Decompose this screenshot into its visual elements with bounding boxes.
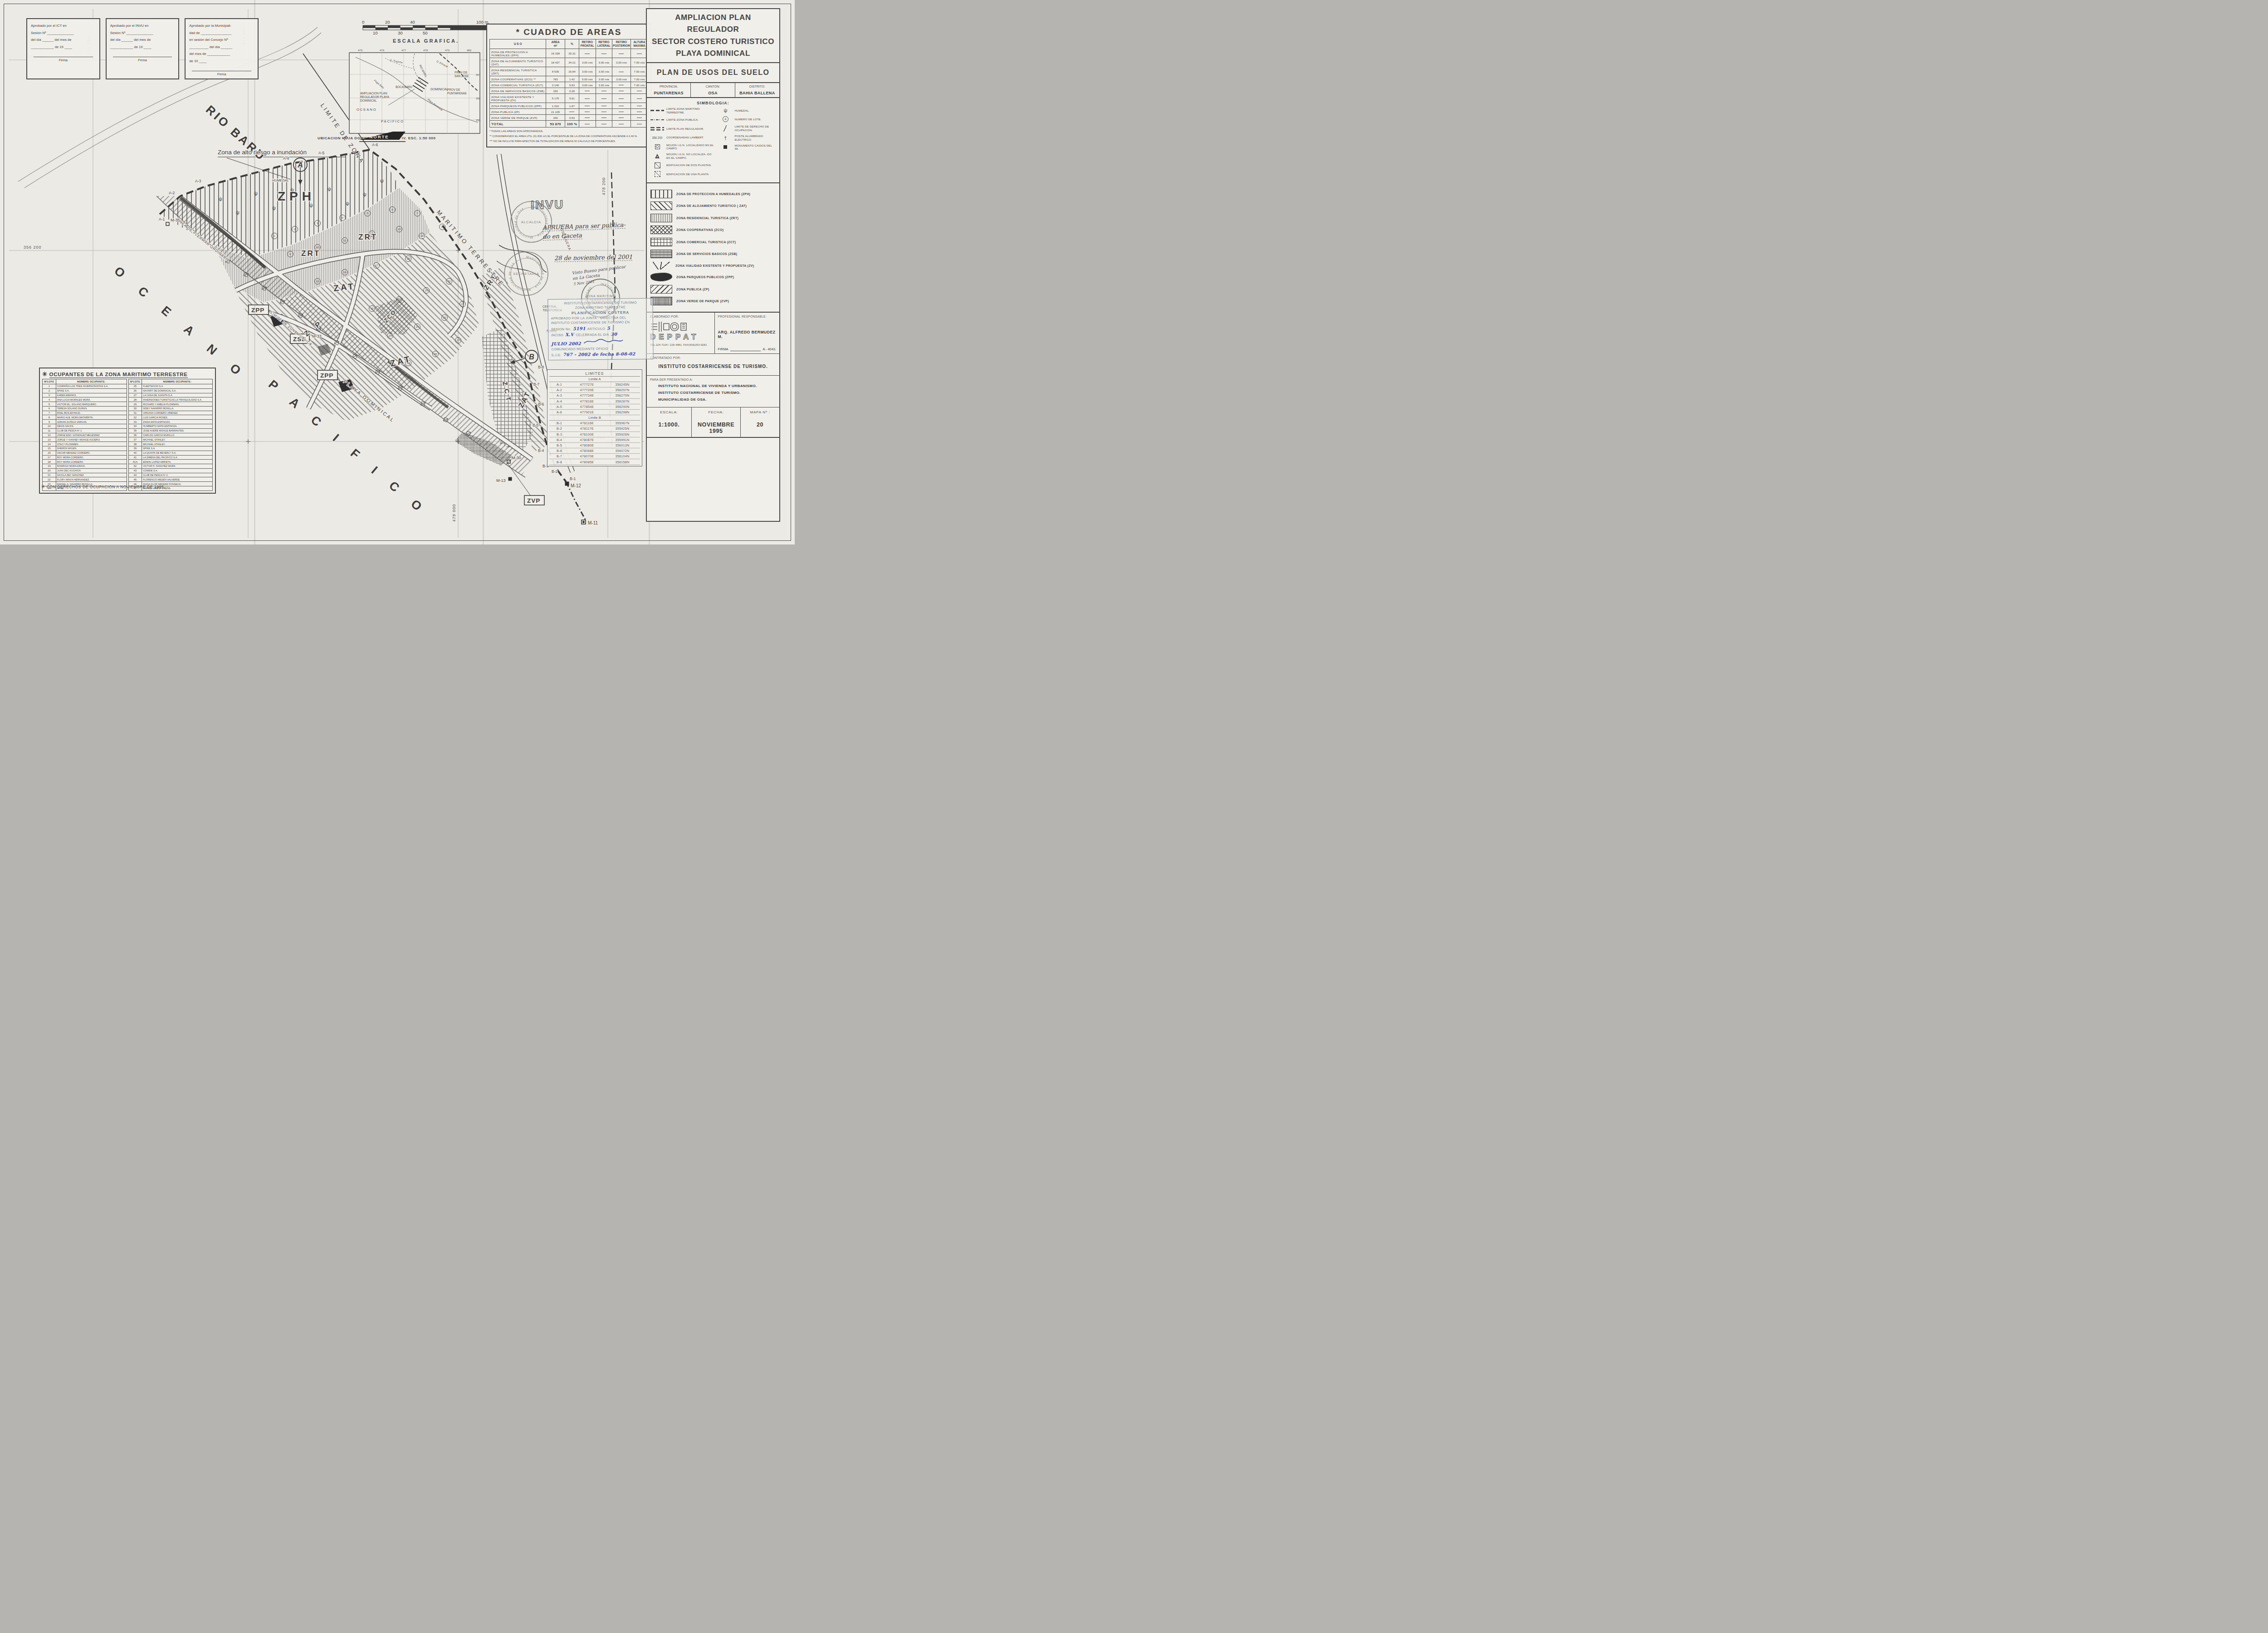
occupant-name-cell: NICOLA ZEC SANCHEZ. bbox=[56, 473, 127, 477]
lot-number-cell: 45 bbox=[128, 477, 142, 482]
simbologia-label: MONUMENTO CAIDOS DEL 48. bbox=[734, 144, 776, 151]
occupant-name-cell: LUIS GARCIA ROSES. bbox=[142, 415, 213, 420]
north-arrow: NORTE bbox=[357, 129, 407, 144]
limit-cell: B-5 bbox=[549, 443, 569, 448]
scale-tick: 40 bbox=[410, 20, 415, 25]
label-oceano: O C E A N O bbox=[112, 264, 250, 383]
legend-label: ZONA DE PROTECCION A HUMEDALES (ZPH) bbox=[676, 192, 750, 196]
lot-number-cell: 36 bbox=[128, 433, 142, 437]
zmt-icon bbox=[650, 108, 664, 114]
cell: 3 140 bbox=[546, 82, 565, 88]
dash-mark bbox=[585, 118, 590, 118]
inset-grid-label: 477 bbox=[401, 49, 406, 52]
cell: 53 870 bbox=[546, 121, 565, 128]
zco-swatch bbox=[650, 226, 672, 234]
table-row: 41LA SIRENA DEL PACIFICO S.A. bbox=[128, 455, 213, 460]
table-row: 31VIRGINIA CORDERO JIMENEZ. bbox=[128, 411, 213, 415]
label-marker-b: B bbox=[529, 353, 534, 361]
canton-label: CANTON: bbox=[693, 85, 733, 88]
approval-line: __________ del día ______ bbox=[189, 44, 254, 51]
legend-label: ZONA RESIDENCIAL TURISTICA (ZRT) bbox=[676, 216, 738, 220]
mojon-noloc-icon bbox=[650, 153, 664, 159]
label-m11: M-11 bbox=[588, 520, 598, 525]
dash-mark bbox=[585, 106, 590, 106]
cell: ZONA RESIDENCIAL TURISTICA (ZRT) bbox=[490, 67, 546, 76]
limit-cell: 356298N bbox=[605, 410, 640, 415]
legend-label: ZONA DE SERVICIOS BASICOS (ZSB) bbox=[676, 252, 737, 255]
table-row: ZONA PARQUEOS PUBLICOS (ZPP)1 0101.87 bbox=[490, 103, 648, 109]
lot-number-cell: 38 bbox=[128, 442, 142, 446]
occupant-name-cell: EDWIN LOPEZ ARRIETA. bbox=[142, 460, 213, 464]
zsb-swatch bbox=[650, 250, 672, 258]
inset-label: BOCA BARU bbox=[396, 85, 412, 88]
simbologia-label: MOJON I.G.N. NO LOCALIZA- DO EN EL CAMPO… bbox=[666, 152, 716, 159]
cell bbox=[596, 109, 612, 115]
legend-label: ZONA DE ALOJAMIENTO TURISTICO ( ZAT) bbox=[676, 204, 747, 207]
inset-grid-label: 476 bbox=[380, 49, 385, 52]
table-row: 25FLEETWOOD S.A. bbox=[128, 384, 213, 389]
limit-cell: 478116E bbox=[569, 421, 605, 426]
inset-grid-label: 475 bbox=[358, 49, 363, 52]
dash-mark bbox=[637, 98, 642, 99]
sheet-subtitle: PLAN DE USOS DEL SUELO bbox=[647, 63, 779, 83]
svg-text:11: 11 bbox=[343, 239, 347, 242]
inset-grid-label: 357 bbox=[476, 74, 481, 76]
label-m13: M-13 bbox=[496, 478, 506, 483]
table-row: 6TERESA SOLANO DURAN. bbox=[43, 406, 127, 411]
approval-line: dad de ________________ bbox=[189, 29, 254, 37]
approval-line: en sesión del Concejo Nº bbox=[189, 36, 254, 44]
label-m35: M-35 bbox=[171, 218, 180, 222]
svg-text:20: 20 bbox=[398, 298, 401, 301]
table-row: 35JOSE ANDRE MONGE BARRANTES. bbox=[128, 428, 213, 433]
table-row: 39SPIKE S.A. bbox=[128, 446, 213, 451]
simbologia-label: LIMITE PLAN REGULADOR. bbox=[666, 127, 704, 131]
label-m30: M-30 bbox=[512, 456, 521, 460]
dash-mark bbox=[585, 98, 590, 99]
approval-line: Sesión Nº ______________ bbox=[110, 29, 175, 37]
simbologia-item: MOJON I.G.N. LOCALIZADO EN EL CAMPO. bbox=[650, 143, 716, 150]
limit-cell: 356158N bbox=[605, 459, 640, 464]
zat-swatch bbox=[650, 201, 672, 210]
firma-line bbox=[113, 57, 172, 57]
limit-cell: B-7 bbox=[549, 454, 569, 459]
firma-label: Firma bbox=[217, 72, 226, 76]
dash-mark bbox=[619, 118, 624, 118]
cell bbox=[631, 109, 648, 115]
lot-number-cell: 42 bbox=[128, 464, 142, 469]
cell bbox=[612, 115, 631, 121]
deppat-wordmark: DEPPAT bbox=[650, 333, 699, 342]
table-row: 10DENIS SACKS. bbox=[43, 424, 127, 429]
fold-line bbox=[483, 0, 484, 544]
occupant-name-cell: ADRIAN ZUÑIGA VARGAS. bbox=[56, 420, 127, 424]
cell: 765 bbox=[546, 76, 565, 82]
zph-swatch bbox=[650, 190, 672, 198]
limit-row: B-1478116E355967N bbox=[549, 421, 640, 426]
svg-text:21: 21 bbox=[425, 289, 428, 292]
legend-row-zpp: ZONA PARQUEOS PUBLICOS (ZPP) bbox=[650, 273, 776, 281]
inset-label: OCEANO bbox=[357, 108, 377, 112]
table-row: 30SIDEY NAVARRO BONILLA. bbox=[128, 406, 213, 411]
inset-grid-label: 478 bbox=[423, 49, 428, 52]
table-row: 28INVERSIONES TURISTICAS LA TRANQUILIDAD… bbox=[128, 397, 213, 402]
limit-cell: 355967N bbox=[605, 421, 640, 426]
table-row: 15SHERON WIGEN. bbox=[43, 446, 127, 451]
cell: 3.00 mts bbox=[579, 82, 596, 88]
svg-text:31: 31 bbox=[457, 339, 460, 342]
derecho-icon bbox=[719, 125, 732, 132]
occupant-name-cell: MARIO ALB. MORA MATARRITA. bbox=[56, 415, 127, 420]
inset-grid-label: 356 bbox=[476, 97, 481, 100]
escala-label: ESCALA: bbox=[648, 410, 690, 414]
cell: ZONA COOPERATIVAS (ZCO) ** bbox=[490, 76, 546, 82]
cell: 3.00 mts bbox=[596, 67, 612, 76]
cell: 3.00 mts bbox=[596, 58, 612, 67]
escala-value: 1:1000. bbox=[648, 422, 690, 428]
handwritten-approval: APRUEBA para ser publica- do en Gaceta bbox=[542, 220, 649, 241]
humedal-icon: ψ bbox=[719, 107, 732, 113]
handwritten-date: 28 de noviembre del 2001 bbox=[554, 253, 633, 261]
limit-row: B-5478080E356013N bbox=[549, 443, 640, 448]
cell bbox=[631, 49, 648, 58]
cell: 0.28 bbox=[565, 88, 579, 94]
lote-header: NºLOTE bbox=[128, 379, 142, 384]
lote-header: NºLOTE bbox=[43, 379, 56, 384]
table-row: 27LA CASA DE JUANITA S.A. bbox=[128, 393, 213, 397]
col-area: AREAm² bbox=[546, 39, 565, 49]
occupant-name-cell: VICTOR H. SANCHEZ MORA bbox=[142, 464, 213, 469]
cell: 0.63 bbox=[565, 115, 579, 121]
table-row: 34HUMBERTO MATA ESPINOZA. bbox=[128, 424, 213, 429]
svg-text:ψ: ψ bbox=[346, 201, 349, 206]
approval-box-1: Aprobado por el ICT enSesión Nº ________… bbox=[26, 18, 100, 79]
cell: 3.00 mts bbox=[596, 82, 612, 88]
cell bbox=[612, 82, 631, 88]
scale-tick: 50 bbox=[423, 30, 428, 35]
legend-label: ZONA VERDE DE PARQUE (ZVP) bbox=[676, 299, 729, 303]
areas-header-row: U S O AREAm² % RETIROFRONTAL RETIROLATER… bbox=[490, 39, 648, 49]
cell bbox=[579, 109, 596, 115]
limit-cell: B-6 bbox=[549, 448, 569, 453]
cell bbox=[596, 49, 612, 58]
zvp-swatch bbox=[650, 297, 672, 305]
cell bbox=[612, 109, 631, 115]
fecha-label: FECHA: bbox=[693, 410, 739, 414]
signature-squiggle bbox=[583, 338, 624, 345]
lot-number-cell: 40 bbox=[128, 451, 142, 455]
deppat-contact: TEL.224-7104 / 225-4881. FAX(506)253-928… bbox=[650, 343, 711, 346]
table-row: 33ZAIDA MATA ESPINOZA. bbox=[128, 420, 213, 424]
fecha-value: NOVIEMBRE 1995 bbox=[693, 422, 739, 434]
lot-number-cell: 20 bbox=[43, 468, 56, 473]
occupant-name-cell: FLEETWOOD S.A. bbox=[142, 384, 213, 389]
cell bbox=[612, 103, 631, 109]
occupants-footnote: ✳ CON DERECHOS DE OCUPACION A NOVIEMBRE … bbox=[41, 484, 165, 490]
table-row: 16OSCAR MENDEZ CORDERO. bbox=[43, 451, 127, 455]
label-zpp-box-2: ZPP bbox=[320, 372, 333, 379]
areas-note: ** CONSIDERANDO EL AREA UTIL (31 830 m²)… bbox=[489, 134, 648, 138]
limit-cell: A-1 bbox=[549, 382, 569, 387]
approval-line: del día ______ del mes de bbox=[110, 36, 175, 44]
invu-stamp: INVU bbox=[531, 197, 565, 212]
occupants-left: NºLOTE NOMBRE OCUPANTE: 1COMPAÑIA LOS TR… bbox=[42, 379, 127, 491]
occupant-name-cell: DENIS SACKS. bbox=[56, 424, 127, 429]
table-row: 11CLUB DE PESCA Nº 1. bbox=[43, 428, 127, 433]
credits: ELABORADO POR: DEPPAT TEL.224-71 bbox=[647, 313, 779, 438]
table-row: 12JORGE EDO. GONZALEZ MELENDEZ bbox=[43, 433, 127, 437]
responsable-label: PROFESIONAL RESPONSABLE: bbox=[718, 315, 776, 318]
cell: 5 175 bbox=[546, 94, 565, 103]
svg-text:10: 10 bbox=[316, 246, 319, 249]
cell bbox=[631, 121, 648, 128]
simbologia-label: COORDENADAS LAMBERT. bbox=[666, 136, 704, 139]
simbologia-item: EDIFICACION DE UNA PLANTA bbox=[650, 171, 716, 177]
table-row: 19RODRIGO MORA ARAYA. bbox=[43, 464, 127, 469]
cell bbox=[596, 115, 612, 121]
dash-mark bbox=[601, 118, 606, 118]
occupant-name-cell: JORGE EDO. GONZALEZ MELENDEZ bbox=[56, 433, 127, 437]
lot-number-cell: 33 bbox=[128, 420, 142, 424]
cell bbox=[579, 94, 596, 103]
limit-row: B-3478100E355926N bbox=[549, 432, 640, 437]
nombre-header: NOMBRE OCUPANTE: bbox=[142, 379, 213, 384]
limit-cell: B-1 bbox=[549, 421, 569, 426]
lot-number-cell: 44 bbox=[128, 473, 142, 477]
dash-mark bbox=[619, 98, 624, 99]
legend-row-zat: ZONA DE ALOJAMIENTO TURISTICO ( ZAT) bbox=[650, 201, 776, 210]
limit-cell: A-3 bbox=[549, 393, 569, 398]
label-b5: B-5 bbox=[533, 423, 539, 427]
poste-icon: † bbox=[719, 135, 732, 141]
table-row: 5VICTOR ML. SOLANO BARQUERO. bbox=[43, 402, 127, 407]
svg-text:27: 27 bbox=[461, 303, 464, 305]
dash-mark bbox=[601, 112, 606, 112]
table-row: 1COMPAÑIA LOS TRES INVERSIONISTAS S.A. bbox=[43, 384, 127, 389]
limit-cell: 478117E bbox=[569, 426, 605, 431]
limit-row: A-2477720E356257N bbox=[549, 387, 640, 393]
dash-mark bbox=[601, 91, 606, 91]
approval-box-2: Aprobado por el INVU enSesión Nº _______… bbox=[106, 18, 180, 79]
simbologia-item: LIMITE PLAN REGULADOR. bbox=[650, 126, 716, 132]
cell bbox=[612, 94, 631, 103]
occupant-name-cell: NAYARIT DE DOMINICAL S.A. bbox=[142, 388, 213, 393]
areas-note: *** NO SE INCLUYE PARA EFECTOS DE TOTALI… bbox=[489, 139, 648, 143]
cell: 3.00 mts bbox=[612, 58, 631, 67]
label-flood-note: Zona de alto riesgo a inundación bbox=[218, 149, 307, 156]
legend-row-zsb: ZONA DE SERVICIOS BASICOS (ZSB) bbox=[650, 250, 776, 258]
occupant-name-cell: LA QUINTA DE BEVERLY S.A. bbox=[142, 451, 213, 455]
dash-mark bbox=[637, 118, 642, 118]
lot-number-cell: 8 bbox=[43, 415, 56, 420]
zv-swatch bbox=[650, 262, 671, 270]
presentado-label: PARA SER PRESENTADO A: bbox=[650, 378, 776, 381]
coord-icon: 356 200 bbox=[650, 134, 664, 141]
cell bbox=[579, 115, 596, 121]
table-row: ZONA DE ALOJAMIENTO TURISTICO (ZAT)18 42… bbox=[490, 58, 648, 67]
svg-text:13: 13 bbox=[398, 228, 401, 230]
dash-mark bbox=[585, 54, 590, 54]
occupants-right: NºLOTE NOMBRE OCUPANTE: 25FLEETWOOD S.A.… bbox=[128, 379, 213, 491]
cell bbox=[579, 49, 596, 58]
label-humedal: HUMEDAL bbox=[272, 178, 289, 182]
occupant-name-cell: SPIKE S.A. bbox=[56, 388, 127, 393]
label-a2: A-2 bbox=[169, 191, 175, 195]
title-block: AMPLIACION PLAN REGULADORSECTOR COSTERO … bbox=[646, 8, 780, 522]
occupant-name-cell: ROY MORA CORDERO. bbox=[56, 460, 127, 464]
limit-cell: 478068E bbox=[569, 448, 605, 453]
contratado-label: CONTRATADO POR: bbox=[650, 356, 776, 359]
label-m12: M-12 bbox=[571, 483, 581, 488]
table-row: ZONA DE PROTECCION A HUMEDALES (ZPH)16 3… bbox=[490, 49, 648, 58]
simbologia: SIMBOLOGIA: LIMITE ZONA MARITIMO TERREST… bbox=[647, 98, 779, 183]
col-altura: ALTURAMAXIMA bbox=[631, 39, 648, 49]
provincia-label: PROVINCIA: bbox=[649, 85, 689, 88]
legend-row-zv: ZONA VIALIDAD EXISTENTE Y PROPUESTA (ZV) bbox=[650, 262, 776, 270]
cell bbox=[612, 88, 631, 94]
inset-callout: AMPLIACION PLAN bbox=[360, 92, 387, 95]
inset-label: PACIFICO bbox=[381, 119, 404, 123]
presentado-line: MUNICIPALIDAD DE OSA. bbox=[658, 397, 776, 402]
table-row: 32LUIS GARCIA ROSES. bbox=[128, 415, 213, 420]
mapa-value: 20 bbox=[742, 422, 778, 428]
zp-swatch bbox=[650, 285, 672, 294]
occupant-name-cell: VIRGINIA CORDERO JIMENEZ. bbox=[142, 411, 213, 415]
cell bbox=[579, 121, 596, 128]
label-zrt-1: ZRT bbox=[301, 249, 320, 258]
lot-number-cell: 10 bbox=[43, 424, 56, 429]
table-row: 36CARLOS GARCIA MURILLO. bbox=[128, 433, 213, 437]
cell: 100 % bbox=[565, 121, 579, 128]
label-b1: B-1 bbox=[570, 476, 576, 481]
table-row: 13JORGE Y VIANNEY MONGE AGÜERO. bbox=[43, 437, 127, 442]
col-pct: % bbox=[565, 39, 579, 49]
svg-text:24: 24 bbox=[389, 334, 392, 337]
cell: 1.87 bbox=[565, 103, 579, 109]
limit-cell: B-2 bbox=[549, 426, 569, 431]
simbologia-label: EDIFICACION DE DOS PLANTAS. bbox=[666, 163, 712, 167]
label-b8: B-8 bbox=[538, 365, 544, 369]
lot-number-cell: 1 bbox=[43, 384, 56, 389]
table-row: ZONA VERDE DE PARQUE (ZVP)3400.63 bbox=[490, 115, 648, 121]
dash-mark bbox=[619, 124, 624, 124]
cell bbox=[596, 88, 612, 94]
cell: 3.00 mts bbox=[579, 58, 596, 67]
firma-code: A - 4043. bbox=[763, 347, 776, 351]
cell: 7.00 mts bbox=[631, 58, 648, 67]
lot-number-cell: 7 bbox=[43, 411, 56, 415]
lot-number-cell: 29 bbox=[128, 402, 142, 407]
cell: ZONA DE ALOJAMIENTO TURISTICO (ZAT) bbox=[490, 58, 546, 67]
firma-line bbox=[34, 57, 93, 57]
label-zpp-box-1: ZPP bbox=[251, 307, 264, 314]
occupant-name-cell: SIDEY NAVARRO BONILLA. bbox=[142, 406, 213, 411]
simbologia-item: EDIFICACION DE DOS PLANTAS. bbox=[650, 162, 716, 168]
cell: ZONA PARQUEOS PUBLICOS (ZPP) bbox=[490, 103, 546, 109]
limit-row: B-7478070E356104N bbox=[549, 454, 640, 459]
cell bbox=[631, 103, 648, 109]
legend-row-zph: ZONA DE PROTECCION A HUMEDALES (ZPH) bbox=[650, 190, 776, 198]
svg-text:ψ: ψ bbox=[380, 178, 384, 183]
lot-number-cell: 25 bbox=[128, 384, 142, 389]
table-row: 43COMIDE S.A. bbox=[128, 468, 213, 473]
limit-cell: 477720E bbox=[569, 387, 605, 392]
occupant-name-cell: STACY PLOWMEN. bbox=[56, 442, 127, 446]
occupant-name-cell: FLORENCIO MESEN VALVERDE. bbox=[142, 477, 213, 482]
table-row: 37MICHAEL STANLEY. bbox=[128, 437, 213, 442]
svg-text:17: 17 bbox=[375, 264, 378, 267]
table-row: 42VICTOR H. SANCHEZ MORA bbox=[128, 464, 213, 469]
dash-mark bbox=[619, 85, 624, 85]
mapa-label: MAPA Nº : bbox=[742, 410, 778, 414]
zrt-swatch bbox=[650, 214, 672, 222]
dash-mark bbox=[619, 72, 624, 72]
lot-number-cell: 18 bbox=[43, 460, 56, 464]
occupant-name-cell: LA SIRENA DEL PACIFICO S.A. bbox=[142, 455, 213, 460]
lote-icon: 4 bbox=[719, 116, 732, 123]
occupant-name-cell: FLORY ARAYA HERNANDEZ. bbox=[56, 477, 127, 482]
lot-number-cell: 11 bbox=[43, 428, 56, 433]
limit-row: B-2478117E355925N bbox=[549, 426, 640, 432]
cell bbox=[612, 121, 631, 128]
lot-number-cell: 30 bbox=[128, 406, 142, 411]
occupant-name-cell: MICHAEL STANLEY. bbox=[142, 437, 213, 442]
table-row: TOTAL53 870100 % bbox=[490, 121, 648, 128]
lot-number-cell: 39 bbox=[128, 446, 142, 451]
simbologia-label: MOJON I.G.N. LOCALIZADO EN EL CAMPO. bbox=[666, 143, 716, 150]
cell: 7.00 mts bbox=[631, 82, 648, 88]
cell: ZONA DE SERVICIOS BASICOS (ZSB) bbox=[490, 88, 546, 94]
zct-swatch bbox=[650, 238, 672, 246]
table-row: ZONA COMERCIAL TURISTICA (ZCT).3 1405.83… bbox=[490, 82, 648, 88]
svg-text:25: 25 bbox=[416, 325, 419, 328]
occupant-name-cell: MICHAEL STANLEY. bbox=[142, 442, 213, 446]
label-zvp-box: ZVP bbox=[527, 497, 540, 504]
simbologia-item: MOJON I.G.N. NO LOCALIZA- DO EN EL CAMPO… bbox=[650, 152, 716, 159]
occupant-name-cell: ZAIDA MATA ESPINOZA. bbox=[142, 420, 213, 424]
simbologia-item: LIMITE DE DERECHO DE OCUPACION. bbox=[719, 125, 776, 132]
firma-area: Firma bbox=[189, 71, 254, 76]
mojon-loc-icon bbox=[650, 143, 664, 150]
dash-mark bbox=[637, 112, 642, 112]
cell: 18 427 bbox=[546, 58, 565, 67]
table-row: 14STACY PLOWMEN. bbox=[43, 442, 127, 446]
cell: TOTAL bbox=[490, 121, 546, 128]
limit-row: A-4477816E356287N bbox=[549, 399, 640, 404]
inset-label: PROV DE bbox=[447, 88, 460, 91]
occupant-name-cell: RICHARD Y AMELIA PLOWMAN. bbox=[142, 402, 213, 407]
contratado-value: INSTITUTO COSTARRICENSE DE TURISMO. bbox=[650, 359, 776, 375]
table-row: 29RICHARD Y AMELIA PLOWMAN. bbox=[128, 402, 213, 407]
dash-mark bbox=[585, 91, 590, 91]
limit-row: A-3477734E356270N bbox=[549, 393, 640, 398]
inset-caption: UBICACION HOJA DOMINICAL I.G.N. 3443 IV.… bbox=[318, 136, 513, 140]
occupant-name-cell: JORGE Y VIANNEY MONGE AGÜERO. bbox=[56, 437, 127, 442]
lot-number-cell: 17 bbox=[43, 455, 56, 460]
simbologia-item: MONUMENTO CAIDOS DEL 48. bbox=[719, 144, 776, 151]
zpub-icon bbox=[650, 117, 664, 123]
lot-number-cell: 13 bbox=[43, 437, 56, 442]
cell: 7.00 mts bbox=[631, 67, 648, 76]
occupant-name-cell: RODRIGO MORA ARAYA. bbox=[56, 464, 127, 469]
lot-number-cell: 35 bbox=[128, 428, 142, 433]
presentado-line: INSTITUTO NACIONAL DE VIVIENDA Y URBANIS… bbox=[658, 384, 776, 388]
location-inset-map: 475 476 477 478 479 480 357 356 355 PROV… bbox=[347, 47, 483, 136]
label-a1: A-1 bbox=[159, 217, 165, 221]
limit-cell: 477727E bbox=[569, 382, 605, 387]
label-b4: B-4 bbox=[538, 448, 544, 453]
lot-number-cell: 26 bbox=[128, 388, 142, 393]
